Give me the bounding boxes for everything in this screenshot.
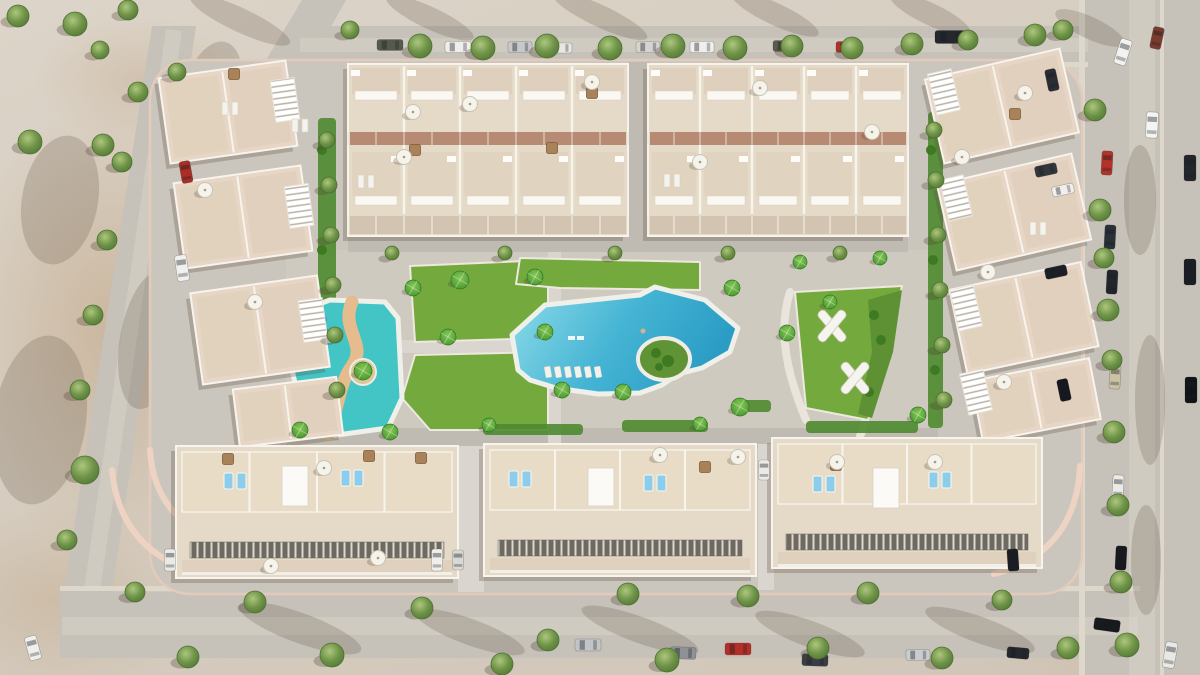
car bbox=[453, 550, 464, 570]
car bbox=[377, 40, 403, 51]
roof-access bbox=[503, 156, 512, 162]
roof-access bbox=[739, 156, 748, 162]
car-windshield bbox=[580, 640, 585, 650]
tree bbox=[807, 637, 829, 659]
car-windshield bbox=[940, 32, 946, 43]
tree bbox=[325, 277, 341, 293]
roof-access bbox=[859, 70, 868, 76]
front-balustrade bbox=[778, 564, 1036, 567]
car-window bbox=[454, 564, 463, 567]
car bbox=[1007, 549, 1020, 572]
car bbox=[24, 635, 42, 661]
tree bbox=[936, 392, 952, 408]
lawn bbox=[516, 258, 700, 290]
roof-access bbox=[351, 70, 360, 76]
car-windshield bbox=[454, 554, 463, 558]
tree bbox=[57, 530, 77, 550]
bush bbox=[930, 365, 940, 375]
tree bbox=[118, 0, 138, 20]
roof-access bbox=[447, 156, 456, 162]
tree bbox=[491, 653, 513, 675]
sun-lounger bbox=[929, 472, 938, 488]
sun-lounger bbox=[354, 470, 363, 486]
tree bbox=[70, 380, 90, 400]
parasol bbox=[836, 461, 839, 464]
pergola bbox=[270, 78, 300, 123]
tree bbox=[1024, 24, 1046, 46]
car-windshield bbox=[1114, 479, 1123, 484]
tree bbox=[125, 582, 145, 602]
car-window bbox=[463, 43, 467, 52]
tree bbox=[319, 132, 335, 148]
roof-access bbox=[575, 70, 584, 76]
parasol bbox=[469, 103, 472, 106]
roof-access bbox=[895, 156, 904, 162]
tree bbox=[932, 282, 948, 298]
carport-roof bbox=[190, 542, 444, 558]
pool-island-plant bbox=[662, 355, 674, 367]
tree bbox=[244, 591, 266, 613]
sun-lounger bbox=[341, 470, 350, 486]
tree bbox=[1084, 99, 1106, 121]
tree bbox=[930, 227, 946, 243]
bush bbox=[928, 255, 938, 265]
sun-lounger bbox=[222, 102, 228, 115]
bush bbox=[876, 335, 886, 345]
ground-shadow bbox=[1131, 505, 1161, 615]
ground-shadow bbox=[1135, 335, 1165, 465]
car-windshield bbox=[1117, 550, 1126, 555]
tree bbox=[1107, 494, 1129, 516]
sun-lounger bbox=[302, 119, 308, 132]
tree bbox=[327, 327, 343, 343]
car-windshield bbox=[1103, 155, 1112, 160]
wooden-table bbox=[364, 451, 375, 462]
tree bbox=[385, 246, 399, 260]
parasol bbox=[1003, 381, 1006, 384]
bush bbox=[926, 145, 936, 155]
car-windshield bbox=[1011, 648, 1016, 657]
roof-pergola bbox=[523, 91, 565, 100]
tree bbox=[7, 5, 29, 27]
roof-pergola bbox=[411, 91, 453, 100]
parasol bbox=[934, 461, 937, 464]
car bbox=[759, 460, 770, 480]
roof-access bbox=[588, 468, 614, 506]
car bbox=[690, 42, 714, 53]
swimmer bbox=[641, 329, 646, 334]
tree bbox=[537, 629, 559, 651]
tree bbox=[1057, 637, 1079, 659]
roof-pergola bbox=[355, 91, 397, 100]
car bbox=[1145, 112, 1158, 139]
tree bbox=[1110, 571, 1132, 593]
tree bbox=[857, 582, 879, 604]
car-window bbox=[565, 44, 568, 52]
car-windshield bbox=[1185, 264, 1195, 269]
tree bbox=[617, 583, 639, 605]
car-windshield bbox=[760, 464, 769, 468]
wooden-table bbox=[1010, 109, 1021, 120]
sun-lounger bbox=[368, 175, 374, 188]
tree bbox=[18, 130, 42, 154]
roof-pergola bbox=[759, 196, 797, 205]
sun-lounger bbox=[232, 102, 238, 115]
roof-access bbox=[615, 156, 624, 162]
pool-island-plant bbox=[651, 348, 661, 358]
roof-access bbox=[282, 466, 308, 506]
roof-pergola bbox=[863, 91, 901, 100]
wooden-table bbox=[547, 143, 558, 154]
car bbox=[377, 40, 403, 51]
tree bbox=[721, 246, 735, 260]
roof-pergola bbox=[467, 196, 509, 205]
car bbox=[165, 549, 176, 571]
car-windshield bbox=[1108, 274, 1117, 279]
car-window bbox=[688, 648, 692, 658]
roof-pergola bbox=[655, 91, 693, 100]
roof-access bbox=[807, 70, 816, 76]
tree bbox=[1097, 299, 1119, 321]
car-window bbox=[166, 564, 175, 567]
parasol bbox=[759, 87, 762, 90]
tree bbox=[177, 646, 199, 668]
car-window bbox=[1147, 130, 1157, 134]
roof-access bbox=[703, 70, 712, 76]
roof-access bbox=[519, 70, 528, 76]
parasol bbox=[204, 189, 207, 192]
car bbox=[1185, 377, 1197, 403]
car-window bbox=[707, 43, 710, 52]
parasol bbox=[699, 161, 702, 164]
car-window bbox=[433, 564, 442, 567]
tree bbox=[320, 643, 344, 667]
car-windshield bbox=[512, 43, 517, 52]
roof-terrace bbox=[164, 75, 228, 158]
car bbox=[508, 42, 532, 53]
sun-lounger bbox=[657, 475, 666, 491]
sun-lounger bbox=[813, 476, 822, 492]
tree bbox=[321, 177, 337, 193]
car bbox=[1007, 647, 1030, 660]
parasol bbox=[412, 111, 415, 114]
wooden-table bbox=[223, 454, 234, 465]
bush bbox=[317, 245, 327, 255]
car bbox=[508, 42, 532, 53]
car-windshield bbox=[1147, 116, 1157, 122]
car bbox=[1184, 259, 1196, 285]
car bbox=[432, 549, 443, 571]
roof-pergola bbox=[655, 196, 693, 205]
residential-building bbox=[228, 377, 344, 453]
car-windshield bbox=[1186, 382, 1196, 387]
car bbox=[1145, 112, 1158, 139]
car bbox=[1106, 270, 1118, 295]
tree bbox=[901, 33, 923, 55]
parasol bbox=[737, 456, 740, 459]
car bbox=[725, 643, 751, 655]
sun-lounger bbox=[942, 472, 951, 488]
car-window bbox=[1009, 564, 1018, 568]
tree bbox=[926, 122, 942, 138]
parasol bbox=[323, 467, 326, 470]
car-windshield bbox=[694, 43, 699, 52]
tree bbox=[598, 36, 622, 60]
car-window bbox=[1102, 168, 1111, 172]
car bbox=[1104, 225, 1116, 250]
car-window bbox=[923, 651, 926, 660]
roof-terrace bbox=[238, 389, 286, 442]
sun-lounger bbox=[237, 473, 246, 489]
tree bbox=[128, 82, 148, 102]
pergola bbox=[270, 78, 300, 123]
sun-lounger bbox=[644, 475, 653, 491]
sidewalk bbox=[1160, 0, 1164, 675]
car bbox=[1185, 377, 1197, 403]
sun-lounger bbox=[224, 473, 233, 489]
car bbox=[1115, 546, 1127, 571]
tree bbox=[841, 37, 863, 59]
roof-access bbox=[843, 156, 852, 162]
aerial-render-image bbox=[0, 0, 1200, 675]
roof-pergola bbox=[355, 196, 397, 205]
parasol bbox=[871, 131, 874, 134]
car-window bbox=[525, 43, 528, 52]
car bbox=[165, 549, 176, 571]
tree bbox=[781, 35, 803, 57]
parasol bbox=[987, 271, 990, 274]
roof-pergola bbox=[863, 196, 901, 205]
car-windshield bbox=[166, 553, 175, 557]
tree bbox=[535, 34, 559, 58]
sun-lounger bbox=[826, 476, 835, 492]
pergola bbox=[298, 298, 328, 343]
tree bbox=[408, 34, 432, 58]
car-window bbox=[760, 474, 769, 477]
residential-complex-scene bbox=[0, 0, 1200, 675]
tree bbox=[1094, 248, 1114, 268]
car bbox=[432, 549, 443, 571]
car-window bbox=[1186, 395, 1196, 399]
car bbox=[690, 42, 714, 53]
parasol bbox=[659, 454, 662, 457]
tree bbox=[992, 590, 1012, 610]
roof-pergola bbox=[707, 196, 745, 205]
car-windshield bbox=[910, 651, 915, 660]
tree bbox=[1089, 199, 1111, 221]
ground-shadow bbox=[1124, 145, 1156, 255]
parasol bbox=[254, 301, 257, 304]
car bbox=[1007, 647, 1030, 660]
ground-shadow bbox=[1135, 335, 1165, 465]
parasol bbox=[961, 156, 964, 159]
car bbox=[1184, 155, 1196, 181]
roof-pergola bbox=[523, 196, 565, 205]
car bbox=[1106, 270, 1118, 295]
pergola bbox=[284, 184, 314, 229]
parasol bbox=[1024, 92, 1027, 95]
roof-access bbox=[559, 156, 568, 162]
tree bbox=[471, 36, 495, 60]
hedge bbox=[806, 421, 918, 433]
in-pool-lounger bbox=[577, 336, 584, 340]
pool-island-plant bbox=[655, 363, 663, 371]
ground-shadow bbox=[1124, 145, 1156, 255]
tree bbox=[91, 41, 109, 59]
wooden-table bbox=[416, 453, 427, 464]
car bbox=[1101, 151, 1113, 176]
roof-pergola bbox=[411, 196, 453, 205]
hedge bbox=[483, 424, 583, 435]
car bbox=[759, 460, 770, 480]
tree bbox=[934, 337, 950, 353]
car-windshield bbox=[730, 644, 735, 654]
car bbox=[1007, 549, 1020, 572]
pergola bbox=[284, 184, 314, 229]
tree bbox=[737, 585, 759, 607]
tree bbox=[1053, 20, 1073, 40]
pergola bbox=[298, 298, 328, 343]
tree bbox=[329, 382, 345, 398]
car-window bbox=[1185, 173, 1195, 177]
car-window bbox=[743, 644, 747, 654]
tree bbox=[83, 305, 103, 325]
sun-lounger bbox=[1030, 222, 1036, 235]
parasol bbox=[377, 557, 380, 560]
bush bbox=[869, 310, 879, 320]
car bbox=[1184, 155, 1196, 181]
roof-access bbox=[873, 468, 899, 508]
front-balustrade bbox=[490, 570, 750, 573]
roof-access bbox=[463, 70, 472, 76]
car bbox=[725, 643, 751, 655]
ground-shadow bbox=[1131, 505, 1161, 615]
tree bbox=[1103, 421, 1125, 443]
tree bbox=[661, 34, 685, 58]
car bbox=[453, 550, 464, 570]
wooden-table bbox=[229, 69, 240, 80]
car-window bbox=[1185, 277, 1195, 281]
front-walk bbox=[778, 552, 1036, 564]
roof-pergola bbox=[811, 91, 849, 100]
tree bbox=[92, 134, 114, 156]
tree bbox=[655, 648, 679, 672]
car-windshield bbox=[433, 553, 442, 557]
roof-pergola bbox=[579, 196, 621, 205]
tree bbox=[1115, 633, 1139, 657]
car-windshield bbox=[1008, 553, 1017, 558]
car-window bbox=[1110, 382, 1119, 386]
tree bbox=[63, 12, 87, 36]
car-windshield bbox=[1185, 160, 1195, 165]
roof-access bbox=[407, 70, 416, 76]
tree bbox=[97, 230, 117, 250]
roof-access bbox=[755, 70, 764, 76]
roof-pergola bbox=[707, 91, 745, 100]
car-window bbox=[593, 640, 597, 650]
car-windshield bbox=[640, 43, 645, 52]
tree bbox=[931, 647, 953, 669]
car bbox=[575, 639, 601, 651]
car bbox=[906, 650, 930, 661]
roof-access bbox=[791, 156, 800, 162]
car bbox=[1184, 259, 1196, 285]
roof-pergola bbox=[811, 196, 849, 205]
tree bbox=[341, 21, 359, 39]
sun-lounger bbox=[358, 175, 364, 188]
front-balustrade bbox=[182, 572, 452, 575]
sun-lounger bbox=[509, 471, 518, 487]
tree bbox=[928, 172, 944, 188]
tree bbox=[958, 30, 978, 50]
sun-lounger bbox=[522, 471, 531, 487]
carport-roof bbox=[786, 534, 1028, 550]
in-pool-lounger bbox=[568, 336, 575, 340]
car bbox=[575, 639, 601, 651]
tree bbox=[1102, 350, 1122, 370]
parasol bbox=[270, 565, 273, 568]
parasol bbox=[403, 156, 406, 159]
sun-lounger bbox=[664, 174, 670, 187]
front-walk bbox=[182, 560, 452, 572]
car-window bbox=[1116, 563, 1125, 567]
car-windshield bbox=[450, 43, 455, 52]
roof-pergola bbox=[579, 91, 621, 100]
tree bbox=[71, 456, 99, 484]
car-windshield bbox=[1106, 229, 1115, 234]
tree bbox=[168, 63, 186, 81]
car-window bbox=[395, 41, 399, 50]
sun-lounger bbox=[1040, 222, 1046, 235]
tree bbox=[723, 36, 747, 60]
car bbox=[906, 650, 930, 661]
car bbox=[1104, 225, 1116, 250]
front-walk bbox=[490, 558, 750, 570]
tree bbox=[411, 597, 433, 619]
car-window bbox=[1105, 242, 1114, 246]
tree bbox=[608, 246, 622, 260]
sun-lounger bbox=[674, 174, 680, 187]
tree bbox=[112, 152, 132, 172]
car bbox=[1101, 151, 1113, 176]
wooden-table bbox=[700, 462, 711, 473]
tree bbox=[498, 246, 512, 260]
car bbox=[24, 635, 42, 661]
sun-lounger bbox=[292, 119, 298, 132]
car bbox=[1115, 546, 1127, 571]
car-windshield bbox=[382, 41, 387, 50]
carport-roof bbox=[498, 540, 742, 556]
tree bbox=[833, 246, 847, 260]
parasol bbox=[591, 81, 594, 84]
car-window bbox=[1107, 287, 1116, 291]
tree bbox=[323, 227, 339, 243]
roof-access bbox=[651, 70, 660, 76]
